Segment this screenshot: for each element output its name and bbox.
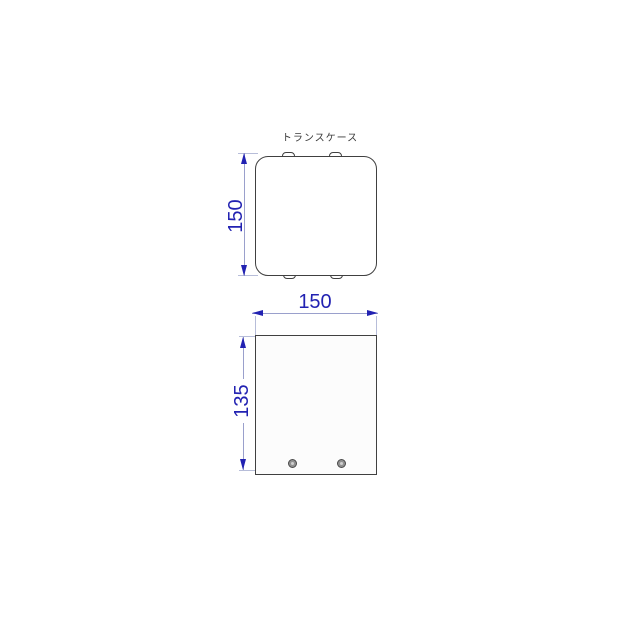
dim-topview-arrow-up: [241, 153, 247, 164]
dim-frontwidth-extension-left: [255, 316, 256, 335]
dim-frontheight-arrow-down: [240, 459, 246, 470]
dim-topview-height-value: 150: [226, 196, 246, 236]
screw-hole-left: [288, 459, 297, 468]
screw-center-dot: [340, 462, 343, 465]
dim-topview-arrow-down: [241, 265, 247, 276]
screw-hole-right: [337, 459, 346, 468]
dim-frontwidth-extension-right: [376, 316, 377, 335]
dim-frontwidth-line: [252, 313, 378, 314]
dim-frontwidth-arrow-right: [367, 310, 378, 316]
front-view-outline: [255, 335, 377, 475]
dim-frontheight-value: 135: [231, 379, 253, 423]
top-view-outline: [255, 156, 377, 276]
part-title-label: トランスケース: [270, 133, 370, 145]
dim-frontwidth-arrow-left: [252, 310, 263, 316]
drawing-canvas: トランスケース 150 150 135: [0, 0, 640, 640]
screw-center-dot: [291, 462, 294, 465]
dim-frontwidth-value: 150: [290, 292, 340, 312]
dim-frontheight-arrow-up: [240, 337, 246, 348]
